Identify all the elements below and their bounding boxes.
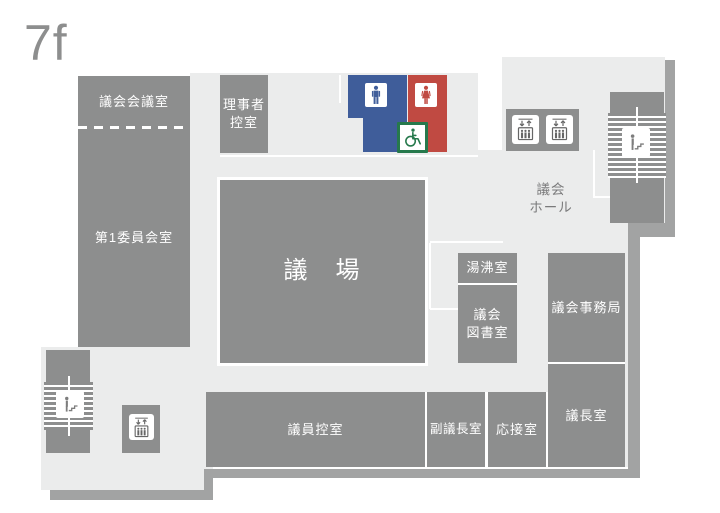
room-dai1-iinkaishitsu-label: 第1委員会室 <box>78 129 190 347</box>
outer-wall-east-upper <box>665 60 675 230</box>
elevator-icon <box>512 115 539 144</box>
room-rijisha-hikaeshitsu: 理事者 控室 <box>220 75 268 153</box>
outer-wall-southwest <box>50 490 213 500</box>
room-gikai-kaigishitsu-label: 議会会議室 <box>78 76 190 128</box>
male-toilet-icon <box>365 83 387 107</box>
corridor-line <box>339 75 341 103</box>
room-divider <box>485 392 488 467</box>
room-divider <box>425 392 427 467</box>
corridor-line <box>220 155 478 157</box>
outer-wall-south <box>213 469 640 478</box>
room-divider <box>548 362 625 364</box>
room-giin-hikaeshitsu: 議員控室 <box>206 392 425 467</box>
corridor-line <box>430 241 503 243</box>
corridor-line <box>430 308 458 310</box>
corridor-line <box>429 243 431 309</box>
room-ousetsushitsu: 応接室 <box>488 392 546 467</box>
corridor-line <box>593 150 595 197</box>
stairwell-lower-left <box>44 350 93 453</box>
room-gijou: 議 場 <box>217 177 428 366</box>
elevator-icon <box>546 115 573 144</box>
room-gikai-jimukyoku: 議会事務局 <box>548 253 625 362</box>
floor-title: 7f <box>24 14 68 72</box>
stairwell-upper-right <box>608 92 666 223</box>
elevator-bank-upper <box>506 109 579 151</box>
room-block-west: 議会会議室 第1委員会室 <box>78 76 190 347</box>
elevator-lower-left <box>122 405 160 453</box>
room-yuwakashishitsu: 湯沸室 <box>458 253 517 283</box>
stairs-icon <box>56 391 84 418</box>
outer-wall-east-lower <box>628 237 640 478</box>
room-gichoushitsu: 議長室 <box>548 364 625 467</box>
room-divider <box>546 392 548 467</box>
room-fuku-gichoushitsu: 副議長室 <box>427 392 485 467</box>
room-divider <box>458 283 517 285</box>
outer-wall-east-step <box>628 223 675 237</box>
elevator-icon <box>129 414 154 440</box>
hall-label-gikai-hall: 議会 ホール <box>511 181 591 216</box>
stairs-icon <box>622 128 650 157</box>
wheelchair-icon <box>397 122 428 153</box>
room-gikai-toshoshitsu: 議会 図書室 <box>458 285 517 363</box>
floor-plan-page: { "floor_label": "7f", "rooms": { "gikai… <box>0 0 720 513</box>
female-toilet-icon <box>415 83 437 107</box>
